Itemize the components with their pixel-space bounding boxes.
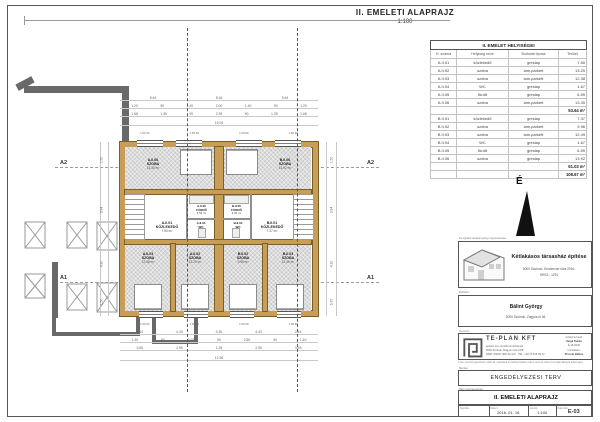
- col-header: Helyiség neve: [457, 50, 509, 59]
- room-label-a05: A.II.05FÜRDŐ6.59 m²: [188, 205, 215, 216]
- window-bottom-1: [139, 311, 163, 318]
- table-row: A.II.04 WC greslap 1.67: [431, 83, 587, 91]
- teplan-logo-icon: [462, 337, 483, 358]
- dim-row-bottom-3: 3.652.961.282.963.65: [120, 346, 318, 351]
- party-wall: [215, 147, 223, 311]
- cell-area: 6.59: [559, 147, 587, 155]
- room-label-b01: B.II.01KÖZLEKEDŐ7.37 m²: [253, 221, 291, 233]
- dim-row-bottom-1: 2.444.433.304.432.44: [120, 330, 318, 335]
- cell-number: B.II.02: [431, 123, 457, 131]
- dim-chain-right: [326, 142, 327, 316]
- cell-name: szoba: [457, 123, 509, 131]
- cell-area: 13.20: [559, 67, 587, 75]
- dim-win-bottom: 1.50 901.50 901.50 901.50 90: [120, 321, 318, 326]
- north-label: É: [516, 176, 523, 187]
- company-line-3: WEB: WWW.TEPLAN.HU · TEL: +36 70 518 99 …: [486, 353, 554, 356]
- toilet-a: [198, 228, 206, 238]
- dim-chain-left-2: [100, 142, 101, 316]
- dim-total-top: 19.04: [120, 121, 318, 126]
- title-underline: [24, 20, 450, 21]
- dim-value: 2.35: [216, 112, 223, 116]
- client-label: Építtető:: [459, 290, 469, 294]
- table-row: A.II.06 szoba lam.parkett 13.30: [431, 99, 587, 107]
- cell-floor: greslap: [509, 147, 559, 155]
- window-size-label: 1.50 90: [190, 131, 199, 135]
- phase-box: ENGEDÉLYEZÉSI TERV: [458, 370, 592, 386]
- lead-designer-id: É 16-0030: [556, 344, 592, 347]
- title-underline-tick: [24, 16, 25, 25]
- bed-b03: [276, 284, 304, 310]
- axis-label-a1-right: A1: [367, 275, 374, 281]
- room-label-a03: A.II.03SZOBA12.38 m²: [126, 252, 170, 264]
- project-title: Kétlakásos társasház építése: [507, 254, 591, 260]
- window-size-label: 1.50 90: [140, 322, 149, 326]
- dim-value: 1.40: [245, 104, 252, 108]
- cell-area: 13.92: [559, 155, 587, 163]
- axis-label-a2-left: A2: [60, 160, 67, 166]
- col-header: H. száma: [431, 50, 457, 59]
- bed-b02: [229, 284, 257, 310]
- subtotal-row-a: 53.64 m²: [431, 107, 587, 115]
- cell-area: 7.50: [559, 59, 587, 67]
- table-row: A.II.05 fürdő greslap 6.59: [431, 91, 587, 99]
- table-section-b: B.II.01 közlekedő greslap 7.37 B.II.02 s…: [431, 115, 587, 163]
- cell-area: 12.38: [559, 75, 587, 83]
- lead-designer-role: vezető tervező:: [556, 336, 592, 339]
- project-label: Az építési tevékenység megnevezése:: [459, 236, 507, 240]
- cell-number: A.II.03: [431, 75, 457, 83]
- title-block-bottom-row: Rajzolta: Dátum: 2016. 01. 16. Lépték: 1…: [458, 405, 592, 417]
- bathtub-a: [189, 195, 214, 204]
- table-row: B.II.02 szoba lam.parkett 9.96: [431, 123, 587, 131]
- cell-floor: greslap: [509, 91, 559, 99]
- dim-value: 3.94: [329, 207, 333, 214]
- cell-number: B.II.03: [431, 131, 457, 139]
- room-label-b06: B.II.06SZOBA13.92 m²: [261, 158, 309, 170]
- dim-value: 1.40: [300, 338, 307, 342]
- existing-wall-top: [24, 86, 129, 93]
- dim-value: 2.80: [244, 338, 251, 342]
- stair-a: [125, 194, 145, 240]
- window-size-label: 1.50 90: [239, 131, 248, 135]
- bathtub-b: [224, 195, 249, 204]
- roof-window-symbols: [20, 218, 125, 318]
- dim-value: 3.65: [295, 346, 302, 350]
- table-section-a: A.II.01 közlekedő greslap 7.50 A.II.02 s…: [431, 59, 587, 107]
- phase-name: ENGEDÉLYEZÉSI TERV: [459, 375, 593, 381]
- bed-a02: [181, 284, 209, 310]
- cell-area: 13.30: [559, 99, 587, 107]
- wall-a-rooms: [171, 244, 175, 311]
- toilet-b: [232, 228, 240, 238]
- client-box: Bálint György 5000 Szolnok, Zagyva út 46…: [458, 295, 592, 327]
- room-label-b05: B.II.05FÜRDŐ6.59 m²: [223, 205, 250, 216]
- dim-value: 90: [245, 112, 249, 116]
- dim-value: 1.20: [131, 104, 138, 108]
- table-row: A.II.02 szoba lam.parkett 13.20: [431, 67, 587, 75]
- dim-value: 1.50: [329, 157, 333, 164]
- table-title: II. EMELET HELYISÉGEI: [431, 41, 587, 50]
- drawn-by-cell: Rajzolta:: [459, 406, 489, 416]
- copyright-note: A terv szerzői jogvédelem alatt áll, más…: [458, 361, 592, 364]
- cell-name: szoba: [457, 99, 509, 107]
- table-row: B.II.04 WC greslap 1.67: [431, 139, 587, 147]
- room-label-a02: A.II.02SZOBA13.20 m²: [176, 252, 214, 264]
- dim-row-top-1: 5.448.165.44: [120, 96, 318, 101]
- cell-number: A.II.01: [431, 59, 457, 67]
- window-top-3: [236, 140, 262, 147]
- cell-area: 1.67: [559, 139, 587, 147]
- window-top-1: [137, 140, 163, 147]
- dim-value: 3.65: [136, 346, 143, 350]
- dim-value: 1.50: [99, 157, 103, 164]
- cell-name: szoba: [457, 75, 509, 83]
- table-row: B.II.03 szoba lam.parkett 12.49: [431, 131, 587, 139]
- cell-number: B.II.01: [431, 115, 457, 123]
- col-header: Terület: [559, 50, 587, 59]
- dim-value: 1.68: [300, 112, 307, 116]
- table-row: B.II.01 közlekedő greslap 7.37: [431, 115, 587, 123]
- assistant-name: Prozsár Balázs: [556, 353, 592, 356]
- dim-value: 2.44: [295, 330, 302, 334]
- cell-name: közlekedő: [457, 115, 509, 123]
- dim-chain-left: [108, 142, 109, 316]
- dim-value: 90: [189, 112, 193, 116]
- dim-value: 1.28: [216, 346, 223, 350]
- cell-name: szoba: [457, 155, 509, 163]
- cell-floor: lam.parkett: [509, 75, 559, 83]
- dim-value: 1.20: [300, 104, 307, 108]
- window-size-label: 1.50 90: [239, 322, 248, 326]
- dim-value: 1.50: [99, 299, 103, 306]
- subtotal-row-b: 61.03 m²: [431, 163, 587, 171]
- dim-value: 4.43: [176, 330, 183, 334]
- drawing-sheet: II. EMELETI ALAPRAJZ 1:100 A2 A2 A1 A1: [0, 0, 600, 422]
- room-label-b04: B.II.04WC: [226, 222, 250, 229]
- drawing-title-box: II. EMELETI ALAPRAJZ: [458, 390, 592, 405]
- cell-name: szoba: [457, 67, 509, 75]
- cell-number: B.II.06: [431, 155, 457, 163]
- cell-area: 9.96: [559, 123, 587, 131]
- section-line-2: [297, 28, 298, 392]
- dim-value: 1.35: [271, 112, 278, 116]
- table-row: A.II.03 szoba lam.parkett 12.38: [431, 75, 587, 83]
- cell-floor: greslap: [509, 139, 559, 147]
- room-label-a04: A.II.04WC: [189, 222, 213, 229]
- cell-floor: greslap: [509, 83, 559, 91]
- bed-b06: [226, 149, 258, 175]
- window-top-2: [176, 140, 202, 147]
- partition-a-wc: [188, 218, 215, 220]
- drawing-title: II. EMELETI ALAPRAJZ: [459, 395, 593, 401]
- dim-value: 90: [217, 338, 221, 342]
- stair-b: [293, 194, 313, 240]
- north-arrow-icon: [504, 188, 548, 240]
- dim-value: 1.35: [160, 112, 167, 116]
- cell-floor: lam.parkett: [509, 123, 559, 131]
- dim-value: 90: [161, 338, 165, 342]
- cell-number: A.II.06: [431, 99, 457, 107]
- window-size-label: 1.50 90: [190, 322, 199, 326]
- cell-number: B.II.05: [431, 147, 457, 155]
- dim-value: 2.96: [255, 346, 262, 350]
- cell-name: közlekedő: [457, 59, 509, 67]
- dim-value: 2.44: [136, 330, 143, 334]
- dim-value: 3.30: [216, 330, 223, 334]
- cell-area: 12.49: [559, 131, 587, 139]
- table-row: B.II.06 szoba greslap 13.92: [431, 155, 587, 163]
- cell-floor: lam.parkett: [509, 99, 559, 107]
- cell-area: 1.67: [559, 83, 587, 91]
- dim-value: 1.40: [131, 338, 138, 342]
- building-rendering-icon: [462, 246, 506, 284]
- cell-name: fürdő: [457, 91, 509, 99]
- cell-name: szoba: [457, 131, 509, 139]
- cell-number: A.II.04: [431, 83, 457, 91]
- company-name: TE-PLAN KFT: [486, 336, 536, 342]
- axis-label-a1-left: A1: [60, 275, 67, 281]
- dim-value: 5.44: [282, 96, 289, 100]
- axis-label-a2-right: A2: [367, 160, 374, 166]
- room-label-a01: A.II.01KÖZLEKEDŐ7.50 m²: [148, 221, 186, 233]
- project-address: 5000 Szolnok, Kendervári utca 2016.: [507, 267, 591, 271]
- cell-floor: greslap: [509, 115, 559, 123]
- room-label-b03: B.II.03SZOBA12.49 m²: [266, 252, 310, 264]
- company-line-1: építész és mérnöki tervezőiroda: [486, 345, 554, 348]
- cell-floor: greslap: [509, 155, 559, 163]
- cell-name: WC: [457, 83, 509, 91]
- cell-floor: greslap: [509, 59, 559, 67]
- cell-number: B.II.04: [431, 139, 457, 147]
- dim-chain-right-2: [336, 142, 337, 316]
- cell-floor: lam.parkett: [509, 67, 559, 75]
- client-name: Bálint György: [459, 304, 593, 310]
- total-row: 108.67 m²: [431, 171, 587, 179]
- dim-row-top-3: 1.681.35902.35901.351.68: [120, 112, 318, 117]
- window-bottom-3: [230, 311, 254, 318]
- window-size-label: 1.50 90: [140, 131, 149, 135]
- lead-designer-name: Varga Tamás: [556, 340, 592, 343]
- dim-value: 4.30: [329, 261, 333, 268]
- dim-value: 90: [273, 338, 277, 342]
- client-address: 5000 Szolnok, Zagyva út 46.: [459, 315, 593, 319]
- designer-box: TE-PLAN KFT építész és mérnöki tervezőir…: [458, 333, 592, 360]
- sheet-number-cell: Rajzszám: E-03: [556, 406, 591, 416]
- cell-name: fürdő: [457, 147, 509, 155]
- dim-value: 90: [274, 104, 278, 108]
- dim-value: 3.94: [99, 207, 103, 214]
- dim-value: 3.00: [188, 338, 195, 342]
- cell-name: WC: [457, 139, 509, 147]
- cell-number: A.II.05: [431, 91, 457, 99]
- dim-value: 90: [160, 104, 164, 108]
- bed-a06: [180, 149, 212, 175]
- dim-row-top-2: 1.20901.402.001.40901.20: [120, 104, 318, 109]
- dim-value: 8.16: [216, 96, 223, 100]
- partition-b-wc: [223, 218, 250, 220]
- room-schedule-table: II. EMELET HELYISÉGEI H. száma Helyiség …: [430, 40, 587, 179]
- cell-floor: lam.parkett: [509, 131, 559, 139]
- dim-value: 1.68: [131, 112, 138, 116]
- company-line-2: 5000 Szolnok, Magyar utca 21/B: [486, 349, 554, 352]
- cell-number: A.II.02: [431, 67, 457, 75]
- dim-value: 6.70: [329, 299, 333, 306]
- wall-top-band: [125, 190, 311, 194]
- project-parcel: HRSZ.: 1291: [507, 273, 591, 277]
- room-label-b02: B.II.02SZOBA9.96 m²: [224, 252, 262, 264]
- date-cell: Dátum: 2016. 01. 16.: [489, 406, 528, 416]
- table-row: B.II.05 fürdő greslap 6.59: [431, 147, 587, 155]
- assistant-role: munkatárs:: [556, 349, 592, 352]
- partition-b-bath: [250, 194, 252, 240]
- cell-area: 7.37: [559, 115, 587, 123]
- scale-cell: Lépték: 1:100: [528, 406, 556, 416]
- project-box: Kétlakásos társasház építése 5000 Szolno…: [458, 241, 592, 288]
- col-header: Burkolat típusa: [509, 50, 559, 59]
- dim-win-top: 1.50 901.50 901.50 901.50 90: [120, 130, 318, 135]
- dim-value: 2.00: [216, 104, 223, 108]
- dim-value: 2.96: [176, 346, 183, 350]
- page-title: II. EMELETI ALAPRAJZ: [280, 8, 530, 17]
- table-row: A.II.01 közlekedő greslap 7.50: [431, 59, 587, 67]
- dim-total-bottom: 12.56: [120, 356, 318, 361]
- cell-area: 6.59: [559, 91, 587, 99]
- dim-row-bottom-2: 1.40903.00902.80901.40: [120, 338, 318, 343]
- bed-a03: [134, 284, 162, 310]
- dim-value: 5.44: [150, 96, 157, 100]
- room-label-a06: A.II.06SZOBA13.30 m²: [128, 158, 178, 170]
- wall-bottom-band: [125, 240, 311, 244]
- dim-value: 4.43: [255, 330, 262, 334]
- dim-value: 4.30: [99, 261, 103, 268]
